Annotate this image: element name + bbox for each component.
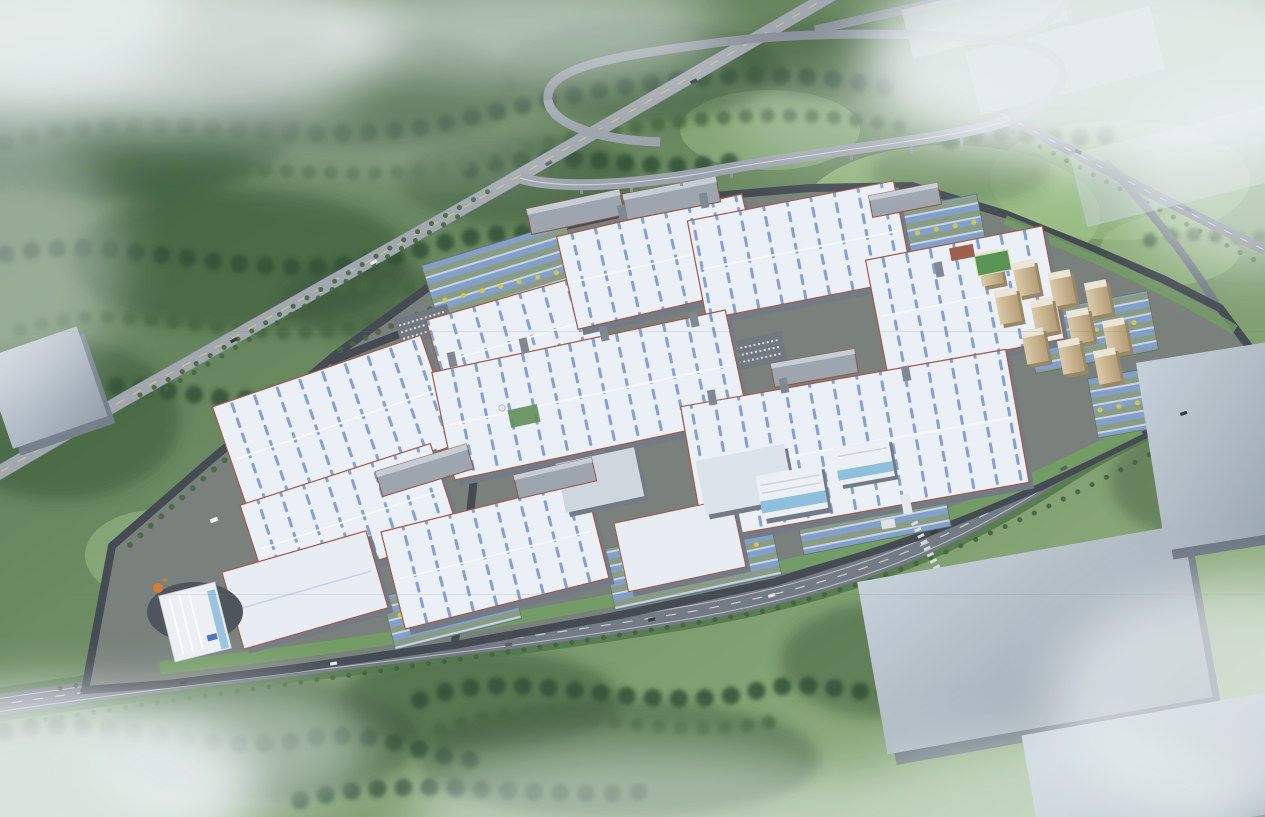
scan-tint [0, 0, 1265, 817]
aerial-rendering [0, 0, 1265, 817]
